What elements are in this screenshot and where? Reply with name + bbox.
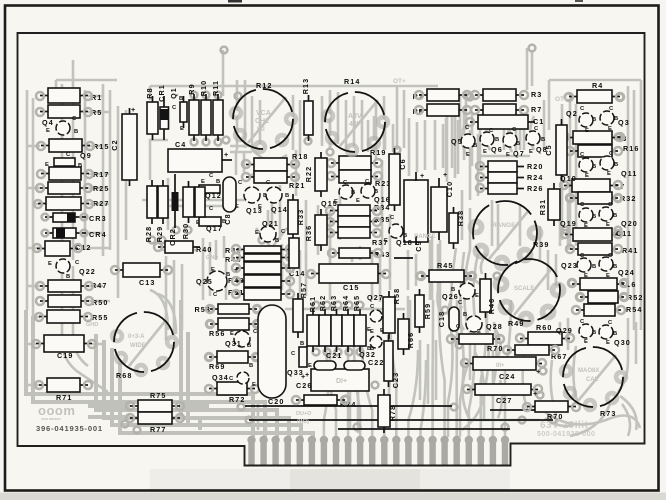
svg-text:0+3-A: 0+3-A [128, 334, 145, 340]
svg-text:C10: C10 [445, 181, 454, 198]
svg-text:DU+O: DU+O [296, 411, 312, 417]
svg-text:C6: C6 [398, 158, 407, 169]
svg-text:E: E [584, 339, 588, 345]
svg-text:+: + [234, 265, 239, 274]
svg-text:E: E [606, 273, 610, 279]
svg-text:R57: R57 [299, 282, 308, 299]
svg-text:Q24: Q24 [618, 268, 635, 277]
svg-text:B: B [541, 137, 545, 143]
svg-text:Q10: Q10 [560, 174, 577, 183]
svg-text:+: + [536, 367, 541, 376]
svg-text:E: E [529, 149, 533, 155]
svg-text:+: + [224, 150, 229, 159]
svg-text:Q6: Q6 [491, 145, 503, 154]
svg-text:E: E [201, 179, 205, 185]
svg-text:E: E [356, 198, 360, 204]
svg-text:R78: R78 [388, 405, 397, 422]
svg-text:R66: R66 [406, 332, 415, 349]
svg-text:R33: R33 [296, 209, 305, 226]
svg-text:Q29: Q29 [556, 326, 573, 335]
svg-text:63V-19Ilit: 63V-19Ilit [540, 420, 589, 431]
svg-text:B: B [613, 264, 617, 270]
svg-text:A3V: A3V [348, 113, 362, 120]
svg-text:CAL: CAL [586, 377, 599, 383]
svg-text:ЯANGE: ЯANGE [492, 222, 516, 229]
svg-text:E: E [180, 126, 184, 132]
svg-text:E: E [606, 340, 610, 346]
svg-text:Q14: Q14 [271, 205, 288, 214]
svg-text:R15: R15 [93, 142, 110, 151]
svg-text:Q11: Q11 [621, 169, 638, 178]
svg-text:R75: R75 [150, 391, 167, 400]
svg-text:R65: R65 [352, 295, 361, 312]
svg-text:B: B [451, 287, 455, 293]
svg-text:E: E [45, 162, 49, 168]
svg-text:C23: C23 [391, 372, 400, 389]
svg-text:E: E [384, 238, 388, 244]
svg-text:R41: R41 [622, 246, 639, 255]
svg-text:C19: C19 [57, 351, 74, 360]
svg-text:E: E [584, 223, 588, 229]
svg-text:E: E [252, 382, 256, 388]
svg-text:B: B [463, 312, 467, 318]
svg-text:B: B [516, 141, 520, 147]
svg-text:E: E [585, 128, 589, 134]
svg-text:B: B [179, 96, 183, 102]
svg-text:R31: R31 [538, 199, 547, 216]
svg-text:CR1: CR1 [157, 84, 166, 102]
svg-text:R61: R61 [308, 296, 317, 313]
svg-text:B: B [495, 137, 499, 143]
svg-text:B: B [275, 238, 279, 244]
svg-text:B: B [247, 343, 251, 349]
svg-text:Q5: Q5 [451, 137, 463, 146]
svg-text:VCA: VCA [256, 110, 271, 117]
svg-text:+: + [443, 170, 448, 179]
svg-text:Q7: Q7 [513, 149, 525, 158]
svg-text:R22: R22 [304, 166, 313, 183]
svg-text:R35: R35 [374, 215, 391, 224]
svg-text:E: E [235, 204, 239, 210]
svg-text:C18: C18 [437, 311, 446, 328]
svg-text:R56: R56 [209, 329, 226, 338]
svg-text:B: B [285, 193, 289, 199]
svg-text:R27: R27 [93, 199, 110, 208]
svg-text:Q17: Q17 [206, 224, 223, 233]
svg-text:Q1: Q1 [169, 87, 178, 99]
svg-text:E: E [255, 230, 259, 236]
svg-text:Q27: Q27 [367, 293, 384, 302]
svg-text:E: E [607, 171, 611, 177]
svg-text:R73: R73 [600, 409, 617, 418]
svg-text:R16: R16 [623, 144, 640, 153]
svg-text:B: B [592, 330, 596, 336]
svg-text:E: E [584, 273, 588, 279]
svg-text:E: E [46, 128, 50, 134]
svg-text:B: B [592, 264, 596, 270]
svg-text:CH2: CH2 [255, 118, 269, 125]
svg-text:E: E [196, 220, 200, 226]
svg-text:E: E [608, 126, 612, 132]
svg-text:B: B [74, 129, 78, 135]
svg-text:R46: R46 [487, 298, 496, 315]
svg-text:E: E [211, 267, 215, 273]
svg-text:R4: R4 [592, 81, 603, 90]
svg-text:E: E [380, 328, 384, 334]
svg-text:500-041935-000: 500-041935-000 [537, 431, 595, 438]
svg-text:R12: R12 [256, 81, 273, 90]
svg-text:Q8: Q8 [536, 145, 548, 154]
svg-text:C26: C26 [296, 381, 313, 390]
svg-text:R77: R77 [150, 425, 167, 434]
svg-text:OT+: OT+ [555, 96, 568, 103]
svg-text:Q23: Q23 [561, 261, 578, 270]
svg-text:R25: R25 [93, 184, 110, 193]
svg-text:CR2: CR2 [168, 228, 177, 246]
svg-text:E: E [258, 204, 262, 210]
svg-text:C1: C1 [533, 117, 544, 126]
svg-text:R3: R3 [531, 90, 542, 99]
svg-text:R38: R38 [456, 210, 465, 227]
svg-text:R71: R71 [56, 393, 73, 402]
svg-text:+: + [301, 372, 306, 381]
svg-text:R54: R54 [626, 305, 643, 314]
svg-text:R45: R45 [437, 261, 454, 270]
svg-text:Q20: Q20 [621, 219, 638, 228]
svg-text:B: B [403, 233, 407, 239]
svg-text:R24: R24 [527, 173, 544, 182]
svg-text:R62: R62 [318, 295, 327, 312]
svg-text:R58: R58 [392, 288, 401, 305]
svg-text:B: B [613, 331, 617, 337]
svg-text:(W2): (W2) [297, 419, 309, 425]
svg-text:B: B [226, 272, 230, 278]
svg-text:+: + [420, 171, 425, 180]
svg-text:C2: C2 [110, 139, 119, 150]
svg-text:B: B [614, 162, 618, 168]
svg-text:WIDE: WIDE [130, 343, 146, 349]
svg-text:C21: C21 [326, 351, 343, 360]
svg-text:Q3: Q3 [618, 118, 630, 127]
svg-text:B: B [592, 214, 596, 220]
svg-text:B: B [300, 341, 304, 347]
svg-text:R30: R30 [181, 223, 190, 240]
svg-text:OT+: OT+ [393, 78, 406, 85]
svg-text:R52: R52 [627, 293, 644, 302]
svg-text:+: + [131, 105, 136, 114]
svg-text:CR4: CR4 [89, 230, 107, 239]
svg-text:C27: C27 [496, 396, 513, 405]
svg-text:Q21: Q21 [262, 219, 279, 228]
svg-text:R29: R29 [155, 226, 164, 243]
svg-text:R26: R26 [527, 184, 544, 193]
svg-text:R63: R63 [329, 295, 338, 312]
svg-text:B: B [249, 363, 253, 369]
svg-text:Q12: Q12 [205, 191, 222, 200]
svg-text:R17: R17 [93, 170, 110, 179]
svg-text:E: E [606, 222, 610, 228]
svg-text:E: E [367, 327, 371, 333]
svg-text:R8: R8 [145, 87, 154, 98]
svg-text:R60: R60 [536, 323, 553, 332]
svg-text:E: E [506, 152, 510, 158]
svg-text:R55: R55 [92, 313, 109, 322]
svg-text:GND: GND [206, 255, 218, 261]
svg-text:R20: R20 [527, 162, 544, 171]
svg-text:B: B [367, 346, 371, 352]
svg-text:Q19: Q19 [560, 219, 577, 228]
svg-text:E: E [230, 331, 234, 337]
svg-text:R40: R40 [196, 245, 213, 254]
svg-text:B: B [216, 179, 220, 185]
svg-text:E: E [308, 363, 312, 369]
svg-text:Q25: Q25 [196, 277, 213, 286]
svg-text:R49: R49 [508, 319, 525, 328]
svg-text:B: B [374, 189, 378, 195]
svg-text:396-041935-001: 396-041935-001 [36, 424, 103, 433]
svg-text:R7: R7 [531, 105, 542, 114]
svg-text:E: E [483, 149, 487, 155]
svg-text:Q9: Q9 [80, 151, 92, 160]
svg-text:R9: R9 [187, 83, 196, 94]
svg-text:Q26: Q26 [442, 292, 459, 301]
svg-text:ЯANGE: ЯANGE [414, 234, 436, 240]
svg-text:Q28: Q28 [486, 322, 503, 331]
svg-text:C22: C22 [368, 358, 385, 367]
svg-text:DI+: DI+ [336, 378, 347, 385]
svg-text:43I: 43I [349, 121, 359, 128]
svg-text:R13: R13 [301, 78, 310, 95]
svg-text:Q18: Q18 [396, 238, 413, 247]
svg-text:Q31: Q31 [225, 339, 242, 348]
svg-text:CR3: CR3 [89, 214, 107, 223]
svg-text:ooom: ooom [38, 403, 75, 418]
svg-text:IAI: IAI [257, 127, 265, 133]
svg-text:0I+: 0I+ [496, 363, 505, 369]
svg-text:Q34: Q34 [212, 373, 229, 382]
svg-text:woo aacase: woo aacase [40, 417, 61, 421]
svg-text:SCALE: SCALE [514, 286, 534, 292]
svg-text:R10: R10 [199, 80, 208, 97]
svg-text:Q2: Q2 [566, 109, 578, 118]
svg-text:Q30: Q30 [614, 338, 631, 347]
svg-text:R11: R11 [211, 80, 220, 96]
svg-text:R72: R72 [229, 395, 246, 404]
svg-text:Q22: Q22 [79, 267, 96, 276]
svg-text:E: E [466, 152, 470, 158]
svg-text:B: B [66, 274, 70, 280]
svg-text:B: B [592, 117, 596, 123]
svg-text:E: E [475, 293, 479, 299]
svg-text:C8: C8 [223, 213, 232, 224]
svg-text:C9: C9 [414, 240, 423, 251]
svg-text:R68: R68 [116, 371, 133, 380]
svg-text:C20: C20 [268, 397, 285, 406]
svg-text:Q4: Q4 [42, 118, 54, 127]
svg-text:GHD: GHD [86, 322, 98, 328]
svg-text:R28: R28 [144, 226, 153, 243]
svg-text:MAO8X: MAO8X [578, 368, 599, 374]
svg-text:B: B [592, 164, 596, 170]
svg-text:R70: R70 [487, 344, 504, 353]
svg-text:R50: R50 [92, 298, 109, 307]
svg-text:C13: C13 [139, 278, 156, 287]
svg-text:Q16: Q16 [374, 195, 391, 204]
svg-text:E: E [585, 173, 589, 179]
svg-text:E: E [48, 261, 52, 267]
svg-text:+: + [533, 389, 538, 398]
svg-text:R69: R69 [209, 362, 226, 371]
svg-text:B: B [473, 143, 477, 149]
svg-text:C15: C15 [343, 283, 360, 292]
svg-text:B: B [351, 190, 355, 196]
svg-text:C4: C4 [175, 140, 186, 149]
svg-text:E: E [477, 329, 481, 335]
svg-text:E: E [334, 199, 338, 205]
svg-text:C24: C24 [499, 372, 516, 381]
svg-text:R39: R39 [533, 240, 550, 249]
svg-text:B: B [78, 163, 82, 169]
svg-text:B: B [614, 116, 618, 122]
svg-text:R14: R14 [344, 77, 361, 86]
svg-text:R64: R64 [341, 295, 350, 312]
svg-text:R59: R59 [423, 303, 432, 320]
svg-text:B: B [613, 213, 617, 219]
svg-text:R36: R36 [304, 225, 313, 242]
